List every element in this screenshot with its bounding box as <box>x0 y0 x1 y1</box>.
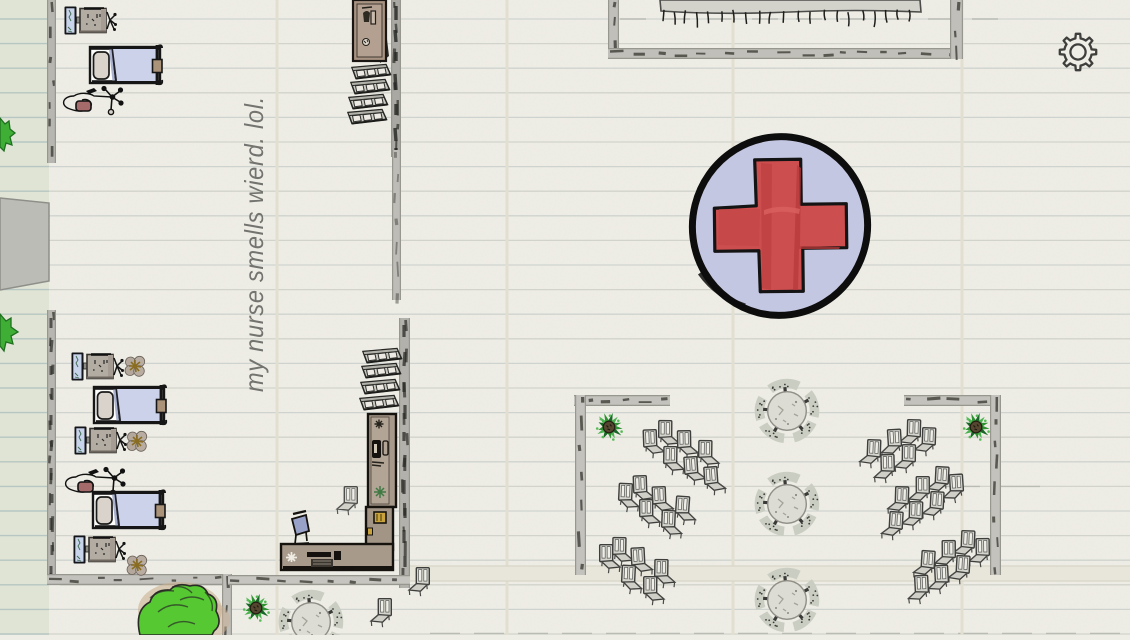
svg-text:my nurse smells wierd. lol.: my nurse smells wierd. lol. <box>239 96 269 392</box>
